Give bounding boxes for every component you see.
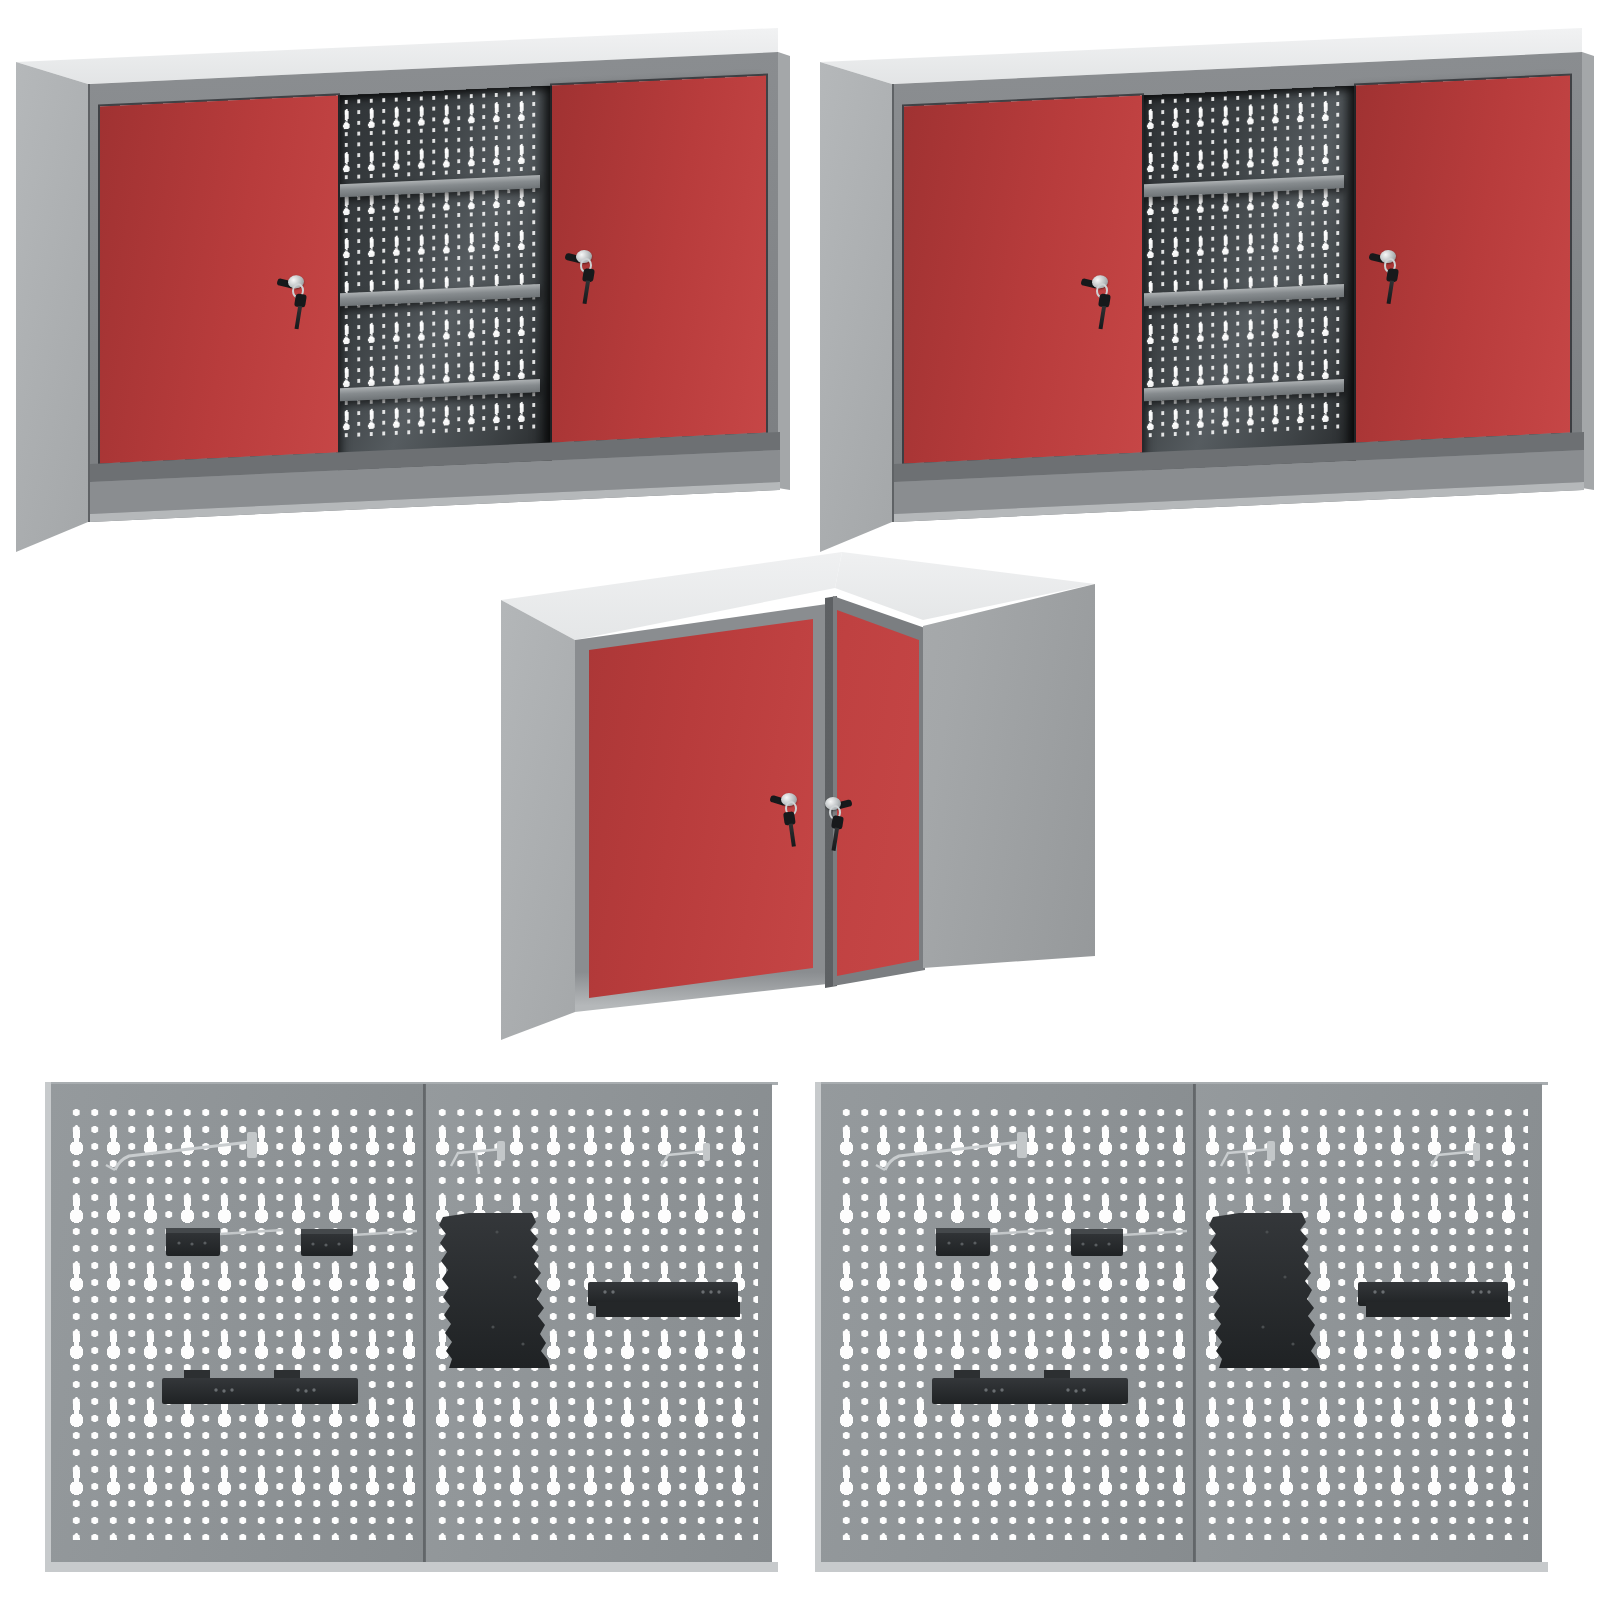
tool-holder-bar bbox=[162, 1370, 358, 1404]
cabinet-front-frame bbox=[88, 52, 778, 522]
pegboard-accessories bbox=[45, 1082, 778, 1572]
corner-door-lock-right bbox=[825, 792, 847, 854]
small-bracket bbox=[936, 1228, 1053, 1256]
hanging-key-icon bbox=[827, 815, 843, 852]
product-collage bbox=[0, 0, 1600, 1600]
small-bracket bbox=[301, 1229, 417, 1256]
wire-hook-large bbox=[106, 1132, 257, 1170]
wire-hook-small bbox=[1431, 1143, 1480, 1166]
wire-hook-small bbox=[661, 1143, 710, 1166]
hanging-key-icon bbox=[783, 811, 799, 848]
cabinet-left-side-panel bbox=[820, 62, 892, 554]
shelf-bracket bbox=[588, 1282, 740, 1317]
wire-hook-small bbox=[451, 1141, 505, 1174]
hanging-key-icon bbox=[578, 268, 594, 305]
wire-hook-small bbox=[1221, 1141, 1275, 1174]
cabinet-left-side-panel bbox=[16, 62, 88, 554]
corner-cabinet-middle bbox=[495, 540, 1105, 1042]
serrated-tool-holder bbox=[1209, 1213, 1320, 1368]
cabinet-open-center bbox=[1142, 86, 1356, 471]
tool-holder-bar bbox=[932, 1370, 1128, 1404]
wall-cabinet-top-right bbox=[812, 22, 1596, 556]
pegboard-set-bottom-left bbox=[45, 1082, 778, 1572]
small-bracket bbox=[166, 1228, 283, 1256]
door-lock-left bbox=[288, 270, 310, 333]
serrated-tool-holder bbox=[439, 1213, 550, 1368]
small-bracket bbox=[1071, 1229, 1187, 1256]
cabinet-open-center bbox=[338, 86, 552, 471]
door-lock-left bbox=[1092, 270, 1114, 333]
hanging-key-icon bbox=[290, 294, 306, 331]
corner-door-lock-left bbox=[781, 788, 803, 850]
door-lock-right bbox=[576, 244, 598, 307]
cabinet-front-frame bbox=[892, 52, 1582, 522]
pegboard-accessories bbox=[815, 1082, 1548, 1572]
hanging-key-icon bbox=[1094, 294, 1110, 331]
shelf-bracket bbox=[1358, 1282, 1510, 1317]
cabinet-right-edge bbox=[778, 52, 790, 492]
wall-cabinet-top-left bbox=[8, 22, 792, 556]
pegboard-set-bottom-right bbox=[815, 1082, 1548, 1572]
cabinet-right-edge bbox=[1582, 52, 1594, 492]
wire-hook-large bbox=[876, 1132, 1027, 1170]
door-lock-right bbox=[1380, 244, 1402, 307]
hanging-key-icon bbox=[1382, 268, 1398, 305]
